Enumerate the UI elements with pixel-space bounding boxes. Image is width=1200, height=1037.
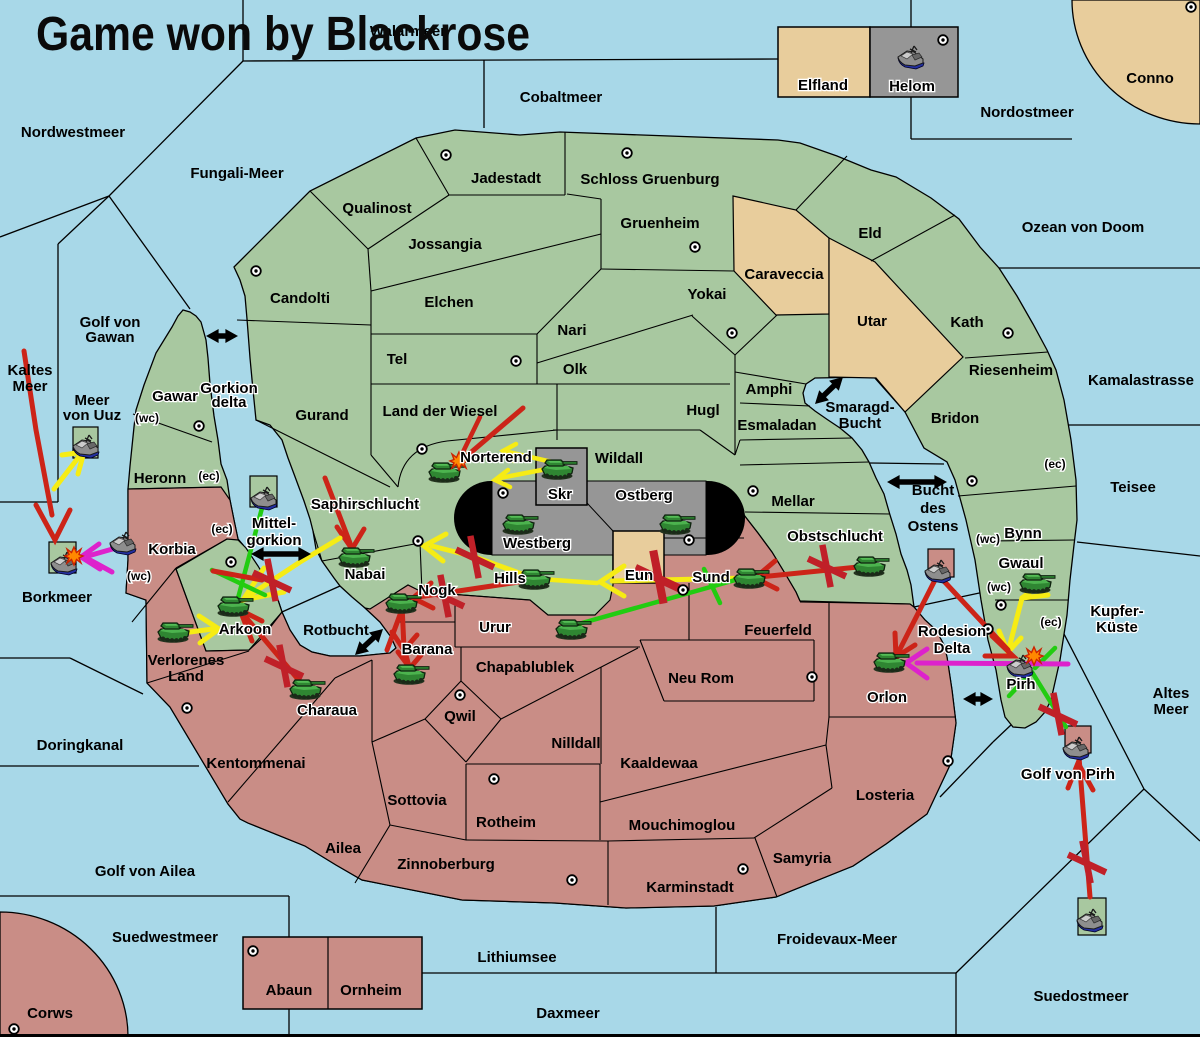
- svg-text:Bynn: Bynn: [1004, 525, 1042, 542]
- svg-text:Arkoon: Arkoon: [219, 621, 272, 638]
- svg-text:Cobaltmeer: Cobaltmeer: [520, 89, 603, 106]
- svg-text:Meer: Meer: [1153, 701, 1188, 718]
- svg-text:Norterend: Norterend: [460, 449, 532, 466]
- svg-text:Bridon: Bridon: [931, 410, 979, 427]
- svg-text:Samyria: Samyria: [773, 850, 832, 867]
- svg-text:(ec): (ec): [1044, 457, 1065, 471]
- svg-text:Sottovia: Sottovia: [387, 792, 447, 809]
- svg-text:Verlorenes: Verlorenes: [148, 652, 225, 669]
- svg-text:Gurand: Gurand: [295, 407, 348, 424]
- svg-text:Land der Wiesel: Land der Wiesel: [383, 403, 498, 420]
- svg-text:Obstschlucht: Obstschlucht: [787, 528, 883, 545]
- svg-text:Nari: Nari: [557, 322, 586, 339]
- svg-text:des: des: [920, 500, 946, 517]
- svg-text:Froidevaux-Meer: Froidevaux-Meer: [777, 931, 897, 948]
- svg-text:Abaun: Abaun: [266, 982, 313, 999]
- svg-text:Delta: Delta: [934, 640, 971, 657]
- svg-text:Jossangia: Jossangia: [408, 236, 482, 253]
- svg-text:Helom: Helom: [889, 78, 935, 95]
- svg-text:(ec): (ec): [211, 522, 232, 536]
- svg-text:Urur: Urur: [479, 619, 511, 636]
- svg-text:Candolti: Candolti: [270, 290, 330, 307]
- svg-text:Caraveccia: Caraveccia: [744, 266, 824, 283]
- svg-text:Zinnoberburg: Zinnoberburg: [397, 856, 495, 873]
- svg-text:Schloss Gruenburg: Schloss Gruenburg: [580, 171, 719, 188]
- svg-text:(wc): (wc): [135, 411, 159, 425]
- svg-text:Golf von Pirh: Golf von Pirh: [1021, 766, 1115, 783]
- svg-text:Yokai: Yokai: [688, 286, 727, 303]
- svg-text:Suedwestmeer: Suedwestmeer: [112, 929, 218, 946]
- svg-text:gorkion: gorkion: [247, 532, 302, 549]
- svg-text:Orlon: Orlon: [867, 689, 907, 706]
- svg-text:Pirh: Pirh: [1006, 676, 1035, 693]
- svg-text:Daxmeer: Daxmeer: [536, 1005, 600, 1022]
- svg-text:(ec): (ec): [198, 469, 219, 483]
- svg-text:Hugl: Hugl: [686, 402, 719, 419]
- svg-text:Gruenheim: Gruenheim: [620, 215, 699, 232]
- svg-text:Ostberg: Ostberg: [615, 487, 673, 504]
- svg-text:Corws: Corws: [27, 1005, 73, 1022]
- svg-text:Ozean von Doom: Ozean von Doom: [1022, 219, 1145, 236]
- svg-text:Küste: Küste: [1096, 619, 1138, 636]
- svg-text:Tel: Tel: [387, 351, 408, 368]
- svg-text:Kupfer-: Kupfer-: [1090, 603, 1143, 620]
- svg-text:Ailea: Ailea: [325, 840, 362, 857]
- svg-text:Smaragd-: Smaragd-: [825, 399, 894, 416]
- svg-text:von Uuz: von Uuz: [63, 407, 121, 424]
- svg-text:Kath: Kath: [950, 314, 983, 331]
- svg-text:(wc): (wc): [127, 569, 151, 583]
- svg-text:Losteria: Losteria: [856, 787, 915, 804]
- svg-text:Rotbucht: Rotbucht: [303, 622, 369, 639]
- svg-text:Lithiumsee: Lithiumsee: [477, 949, 556, 966]
- svg-text:Amphi: Amphi: [746, 381, 793, 398]
- svg-text:Golf von Ailea: Golf von Ailea: [95, 863, 196, 880]
- svg-text:Rodesion: Rodesion: [918, 623, 986, 640]
- svg-text:Neu Rom: Neu Rom: [668, 670, 734, 687]
- svg-text:Meer: Meer: [12, 378, 47, 395]
- svg-text:Mittel-: Mittel-: [252, 515, 296, 532]
- svg-text:Mouchimoglou: Mouchimoglou: [629, 817, 736, 834]
- svg-text:Elchen: Elchen: [424, 294, 473, 311]
- svg-text:Sund: Sund: [692, 569, 730, 586]
- svg-text:Eun: Eun: [625, 567, 653, 584]
- svg-text:Ornheim: Ornheim: [340, 982, 402, 999]
- svg-text:Feuerfeld: Feuerfeld: [744, 622, 812, 639]
- svg-text:Olk: Olk: [563, 361, 588, 378]
- svg-text:Gwaul: Gwaul: [998, 555, 1043, 572]
- svg-text:Barana: Barana: [402, 641, 454, 658]
- svg-text:Esmaladan: Esmaladan: [737, 417, 816, 434]
- svg-text:(wc): (wc): [976, 532, 1000, 546]
- svg-text:Westberg: Westberg: [503, 535, 571, 552]
- svg-text:Kaltes: Kaltes: [7, 362, 52, 379]
- svg-text:Altes: Altes: [1153, 685, 1190, 702]
- svg-text:Heronn: Heronn: [134, 470, 187, 487]
- svg-text:(wc): (wc): [987, 580, 1011, 594]
- svg-text:Fungali-Meer: Fungali-Meer: [190, 165, 284, 182]
- svg-text:delta: delta: [211, 394, 247, 411]
- svg-text:Nilldall: Nilldall: [551, 735, 600, 752]
- svg-text:Nordwestmeer: Nordwestmeer: [21, 124, 125, 141]
- svg-text:Suedostmeer: Suedostmeer: [1033, 988, 1128, 1005]
- svg-text:Eld: Eld: [858, 225, 881, 242]
- svg-text:Land: Land: [168, 668, 204, 685]
- svg-text:Korbia: Korbia: [148, 541, 196, 558]
- svg-text:Utar: Utar: [857, 313, 887, 330]
- svg-text:Hills: Hills: [494, 570, 526, 587]
- svg-text:Bucht: Bucht: [912, 482, 955, 499]
- svg-text:Bucht: Bucht: [839, 415, 882, 432]
- svg-text:Qualinost: Qualinost: [342, 200, 411, 217]
- svg-text:Wildall: Wildall: [595, 450, 643, 467]
- svg-text:Nordostmeer: Nordostmeer: [980, 104, 1074, 121]
- svg-text:Mellar: Mellar: [771, 493, 815, 510]
- svg-text:Elfland: Elfland: [798, 77, 848, 94]
- svg-text:Kentommenai: Kentommenai: [206, 755, 305, 772]
- svg-text:Gawar: Gawar: [152, 388, 198, 405]
- svg-text:Kaaldewaa: Kaaldewaa: [620, 755, 698, 772]
- svg-text:Game won by Blackrose: Game won by Blackrose: [36, 8, 530, 61]
- svg-text:Nabai: Nabai: [345, 566, 386, 583]
- svg-text:Ostens: Ostens: [908, 518, 959, 535]
- svg-text:Conno: Conno: [1126, 70, 1173, 87]
- svg-text:Charaua: Charaua: [297, 702, 358, 719]
- svg-text:Doringkanal: Doringkanal: [37, 737, 124, 754]
- svg-text:Borkmeer: Borkmeer: [22, 589, 92, 606]
- svg-text:Saphirschlucht: Saphirschlucht: [311, 496, 419, 513]
- svg-text:Kamalastrasse: Kamalastrasse: [1088, 372, 1194, 389]
- svg-text:Karminstadt: Karminstadt: [646, 879, 734, 896]
- svg-text:Jadestadt: Jadestadt: [471, 170, 541, 187]
- svg-text:Skr: Skr: [548, 486, 572, 503]
- svg-text:Qwil: Qwil: [444, 708, 476, 725]
- svg-text:Rotheim: Rotheim: [476, 814, 536, 831]
- svg-text:(ec): (ec): [1040, 615, 1061, 629]
- svg-text:Nogk: Nogk: [418, 582, 456, 599]
- svg-text:Teisee: Teisee: [1110, 479, 1156, 496]
- svg-text:Riesenheim: Riesenheim: [969, 362, 1053, 379]
- svg-text:Chapablublek: Chapablublek: [476, 659, 575, 676]
- svg-text:Gawan: Gawan: [85, 329, 134, 346]
